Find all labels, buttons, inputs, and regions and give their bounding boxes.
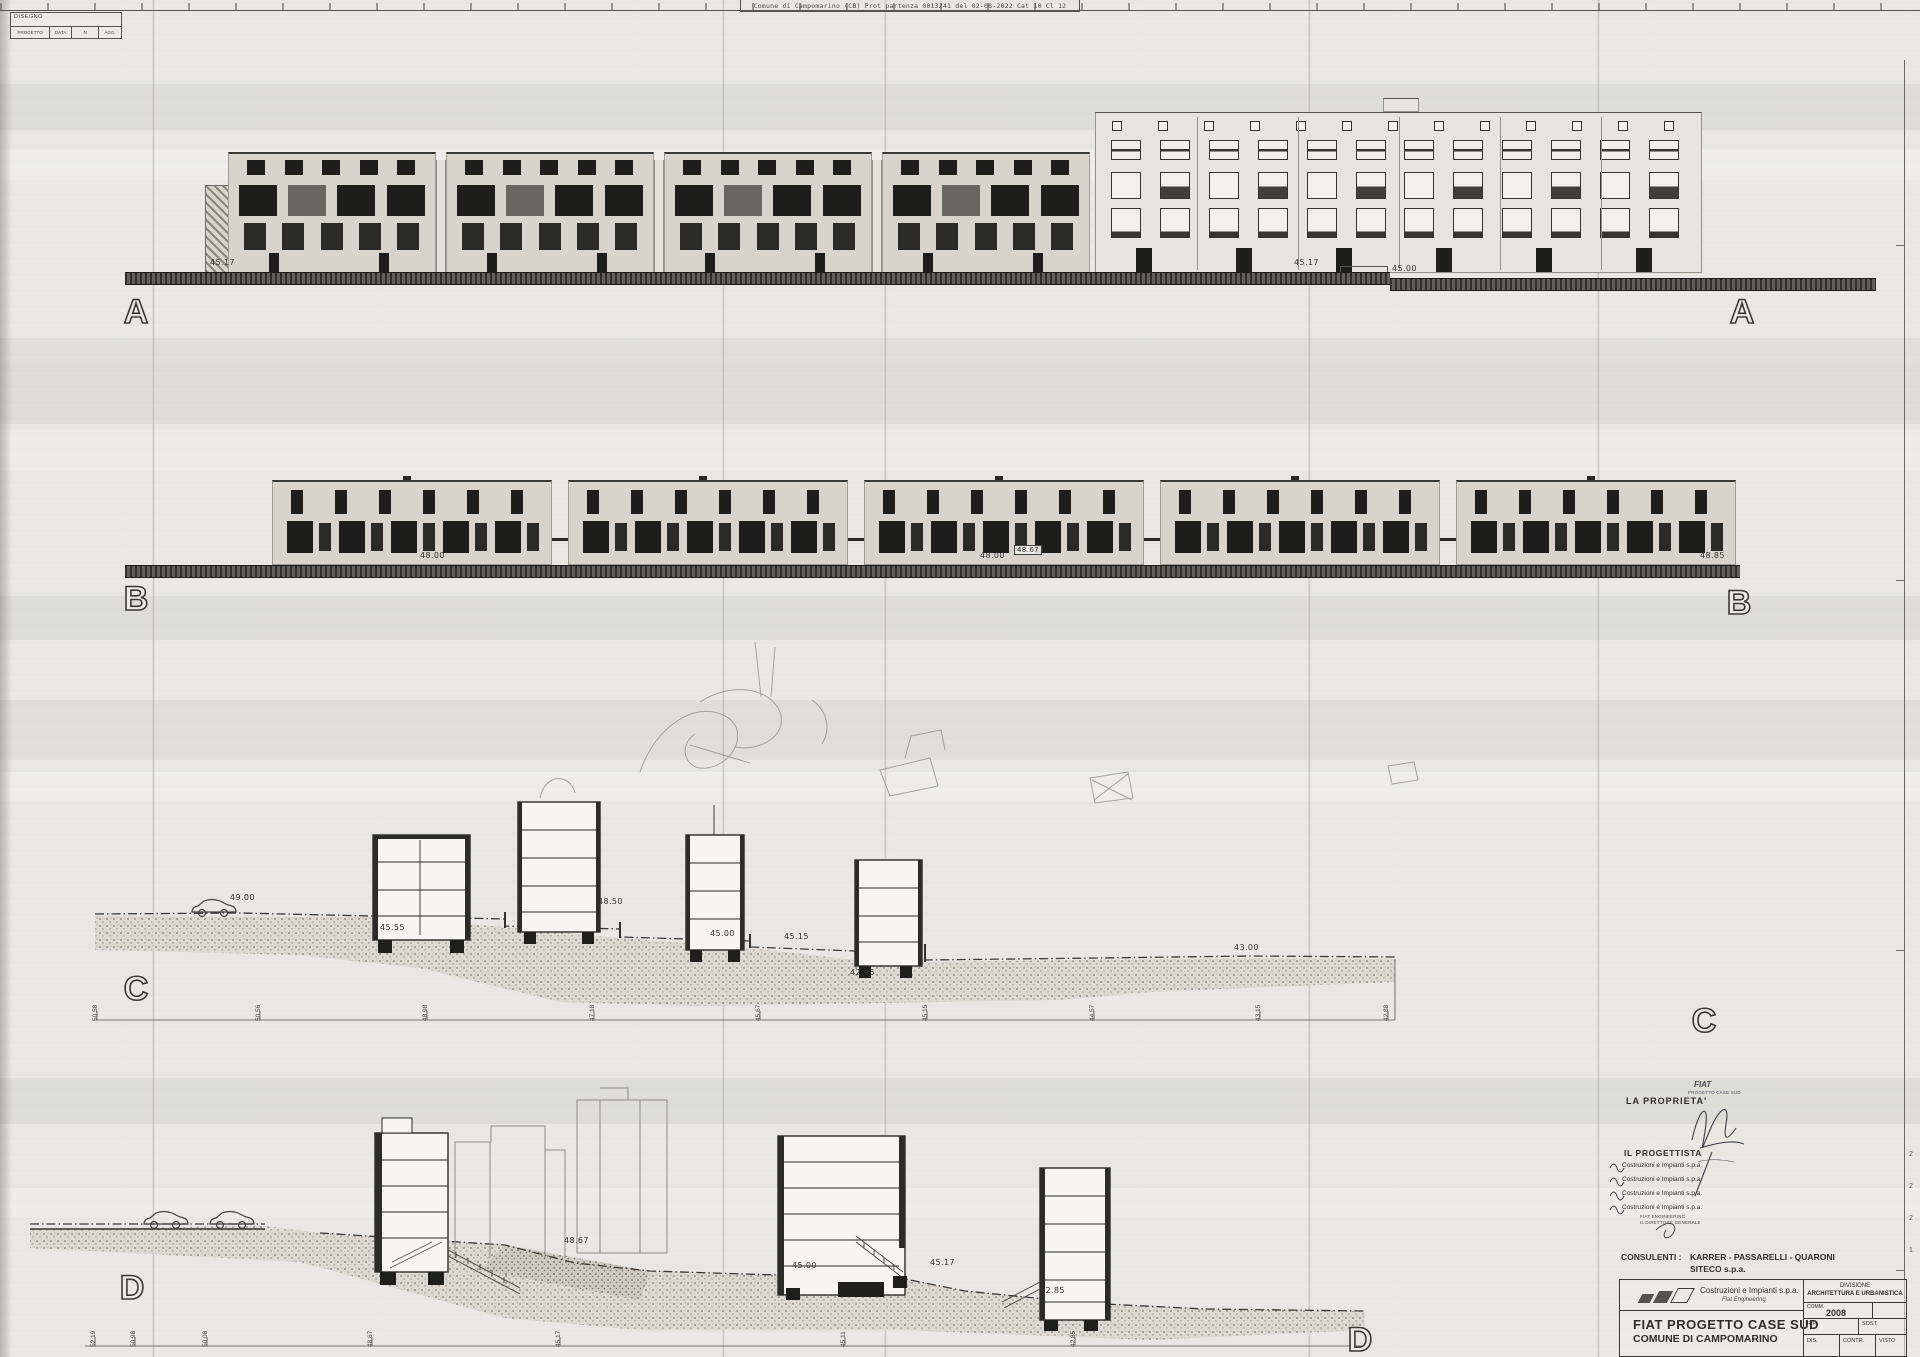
section-d-ground [30,1226,1365,1340]
section-d-pencil-buildings [455,1088,667,1258]
section-c-building-2 [518,802,600,944]
consulenti-names: KARRER - PASSARELLI - QUARONI [1690,1252,1835,1262]
pencil-sketches [540,642,1418,803]
section-d-drawing [30,1088,1370,1346]
title-block-divider [1803,1318,1907,1319]
contr-label: CONTR. [1843,1338,1864,1344]
section-c-ground [95,916,1395,1006]
proprieta-label: LA PROPRIETA' [1626,1096,1707,1106]
comm-label: COMM. [1807,1304,1824,1310]
chainage-label: 45.17 [555,1331,562,1347]
chainage-label: 42.85 [1070,1331,1077,1347]
title-block-divider [1803,1302,1907,1303]
chainage-label: 42.88 [1383,1005,1390,1021]
spot-level: 48.67 [564,1236,589,1245]
car-icon [192,900,236,917]
title-block-divider [1839,1334,1840,1357]
drawing-sheet: 2 2 2 1 Comune di Campomarino (CB) Prot … [0,0,1920,1357]
spot-level: 42.85 [1040,1286,1065,1295]
project-title: FIAT PROGETTO CASE SUD [1633,1317,1819,1332]
consulenti-firm: SITECO s.p.a. [1690,1264,1746,1274]
title-block-divider [1803,1334,1907,1335]
spot-level: 45.17 [930,1258,955,1267]
firm-line: Costruzioni e Impianti s.p.a. [1622,1204,1702,1211]
progettista-label: IL PROGETTISTA [1624,1148,1702,1158]
project-subtitle: COMUNE DI CAMPOMARINO [1633,1333,1778,1345]
section-d-building-2 [778,1136,907,1300]
firm-line: Costruzioni e Impianti s.p.a. [1622,1162,1702,1169]
section-d-marker-right: D [1342,1318,1378,1357]
spot-level: 48.50 [598,897,623,906]
title-block-divider [1872,1302,1873,1318]
chainage-label: 50.08 [202,1331,209,1347]
firm-line: Costruzioni e Impianti s.p.a. [1622,1176,1702,1183]
svg-text:C: C [1692,1002,1717,1040]
consulenti-label: CONSULENTI : [1621,1252,1681,1262]
section-c-drawing [95,802,1395,1020]
spot-level: 45.15 [784,932,809,941]
spot-level: 43.00 [1234,943,1259,952]
title-block-divider [1619,1310,1803,1311]
spot-level: 45.55 [380,923,405,932]
sost-label: SOST. [1862,1321,1878,1327]
dis-label: DIS. [1807,1338,1818,1344]
division-line2: ARCHITETTURA E URBANISTICA [1803,1291,1907,1297]
svg-text:D: D [1348,1321,1373,1357]
company-name: Costruzioni e Impianti s.p.a. [1700,1286,1799,1295]
section-c-building-1 [373,835,470,953]
chainage-label: 52.19 [90,1331,97,1347]
chainage-label: 45.11 [840,1331,847,1347]
spot-level: 42.95 [850,968,875,977]
car-icon [210,1212,254,1229]
spot-level: 45.00 [792,1261,817,1270]
comm-value: 2008 [1826,1308,1846,1318]
company-subname: Fiat Engineering [1722,1297,1766,1303]
chainage-label: 48.67 [367,1331,374,1347]
chainage-label: 50.56 [255,1005,262,1021]
spot-level: 45.00 [710,929,735,938]
section-c-marker-right: C [1686,1000,1722,1040]
svg-text:C: C [124,970,149,1008]
spot-level: 49.00 [230,893,255,902]
chainage-label: 50.58 [92,1005,99,1021]
chainage-label: 45.67 [755,1005,762,1021]
firm-subline: FIAT ENGINEERING [1640,1214,1685,1219]
section-c-marker-left: C [118,968,154,1008]
title-block-divider [1858,1318,1859,1334]
rif-label: RIF. [1807,1321,1817,1327]
title-block-divider [1875,1334,1876,1357]
fiat-stamp: FIAT [1694,1080,1711,1089]
chainage-label: 47.18 [589,1005,596,1021]
section-c-building-4 [855,860,922,978]
division-line1: DIVISIONE [1803,1283,1907,1289]
chainage-label: 45.15 [922,1005,929,1021]
chainage-label: 44.57 [1089,1005,1096,1021]
svg-text:D: D [120,1269,145,1307]
chainage-label: 43.15 [1255,1005,1262,1021]
car-icon [144,1212,188,1229]
firm-line: Costruzioni e Impianti s.p.a. [1622,1190,1702,1197]
firm-subline: IL DIRETTORE GENERALE [1640,1220,1701,1225]
fiat-stamp-line2: PROGETTO CASE SUD [1688,1090,1741,1095]
chainage-label: 48.98 [422,1005,429,1021]
section-d-marker-left: D [114,1266,150,1308]
section-c-building-3 [686,805,744,962]
chainage-label: 50.98 [130,1331,137,1347]
visto-label: VISTO [1879,1338,1895,1344]
